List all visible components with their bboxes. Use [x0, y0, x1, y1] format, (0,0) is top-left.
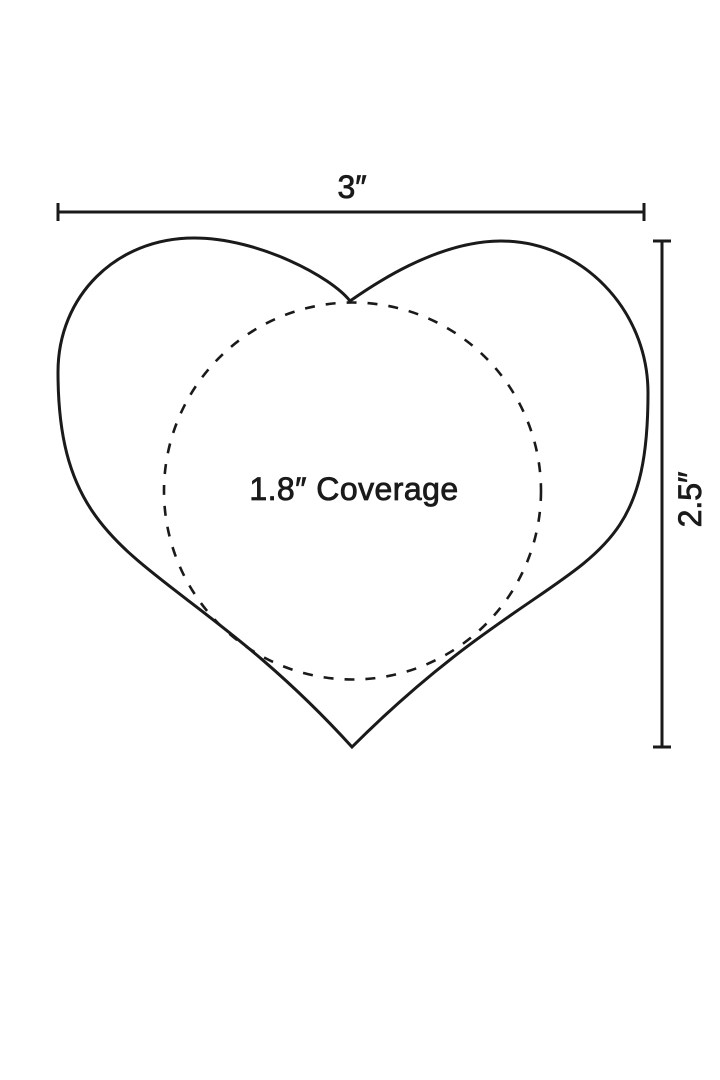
svg-text:1.8″ Coverage: 1.8″ Coverage	[249, 471, 458, 507]
svg-text:2.5″: 2.5″	[672, 472, 708, 528]
svg-text:3″: 3″	[337, 169, 366, 205]
